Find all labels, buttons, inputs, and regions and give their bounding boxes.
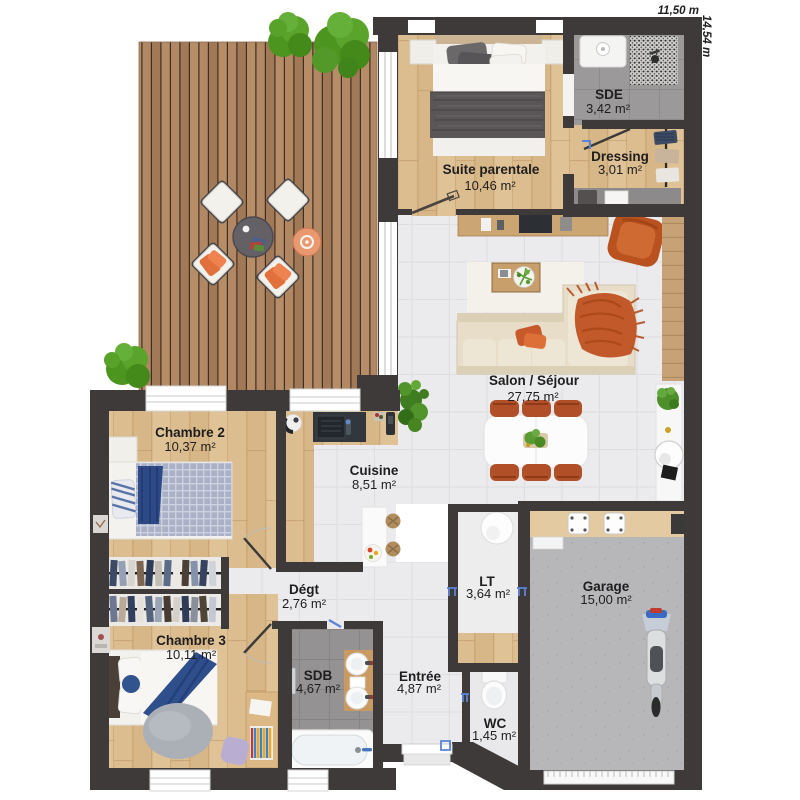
svg-text:4,67 m²: 4,67 m²	[296, 681, 341, 696]
svg-text:SDE: SDE	[595, 87, 623, 102]
svg-text:10,11 m²: 10,11 m²	[166, 647, 217, 662]
svg-text:Suite parentale: Suite parentale	[443, 162, 540, 177]
svg-text:2,76 m²: 2,76 m²	[282, 596, 327, 611]
svg-text:Chambre 3: Chambre 3	[156, 633, 226, 648]
svg-text:14,54 m: 14,54 m	[700, 15, 712, 57]
svg-text:10,37 m²: 10,37 m²	[164, 439, 216, 454]
svg-text:8,51 m²: 8,51 m²	[352, 477, 397, 492]
svg-text:3,42 m²: 3,42 m²	[586, 101, 631, 116]
svg-text:Cuisine: Cuisine	[350, 463, 399, 478]
svg-text:Salon / Séjour: Salon / Séjour	[489, 373, 580, 388]
svg-text:11,50 m: 11,50 m	[658, 5, 699, 17]
svg-text:27,75 m²: 27,75 m²	[507, 389, 559, 404]
svg-text:4,87 m²: 4,87 m²	[397, 681, 442, 696]
svg-text:Dégt: Dégt	[289, 582, 320, 597]
svg-text:10,46 m²: 10,46 m²	[464, 178, 516, 193]
svg-text:3,64 m²: 3,64 m²	[466, 586, 511, 601]
svg-text:Chambre 2: Chambre 2	[155, 425, 225, 440]
svg-text:1,45 m²: 1,45 m²	[472, 728, 517, 743]
svg-text:15,00 m²: 15,00 m²	[580, 592, 632, 607]
svg-text:3,01 m²: 3,01 m²	[598, 162, 643, 177]
